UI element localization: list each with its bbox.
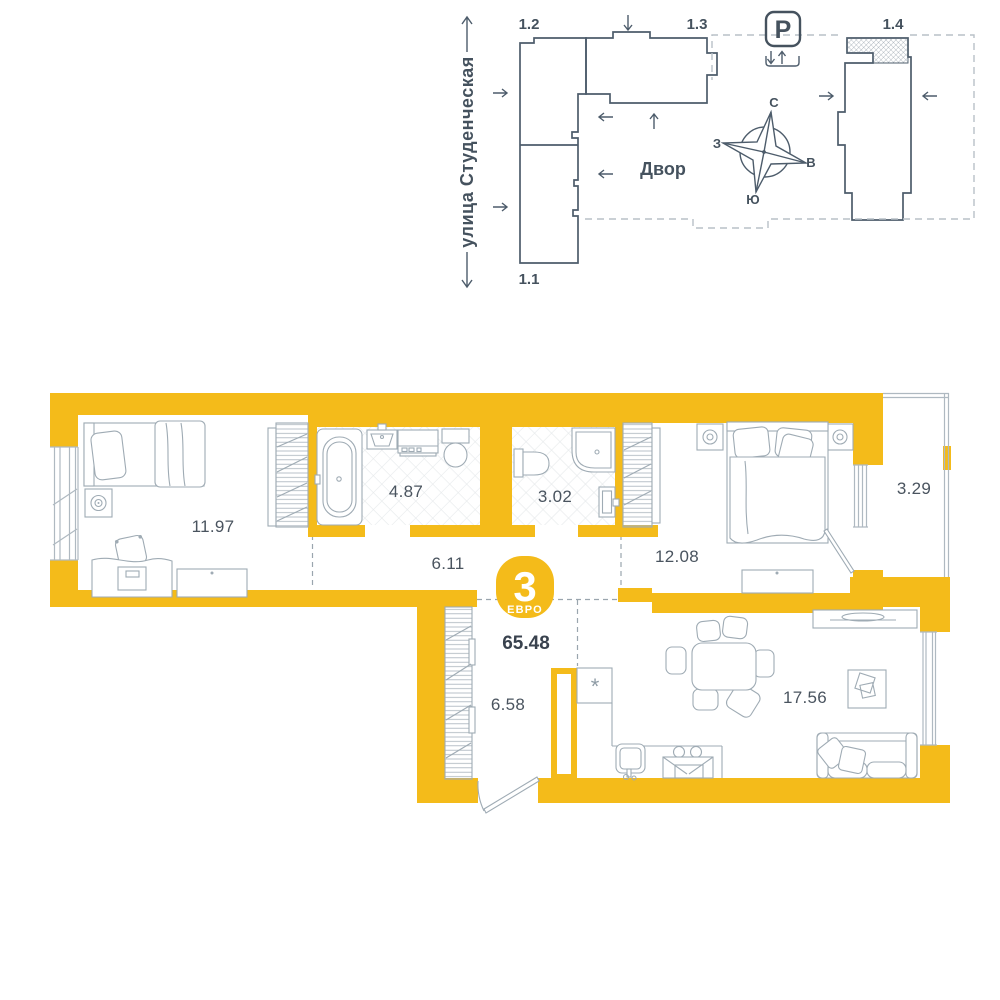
toilet <box>442 429 469 467</box>
building-label-1-1: 1.1 <box>519 271 540 288</box>
parking-arrow-down-icon <box>768 51 775 64</box>
building-1-3-outline <box>586 32 717 103</box>
current-section-hatch <box>847 38 908 63</box>
building-1-4 <box>838 38 911 220</box>
floorplan-page: улица Студенческая 1.2 1 <box>0 0 1000 1000</box>
dining-table <box>692 643 756 690</box>
entrance-arrow-icon <box>599 113 613 121</box>
single-bed <box>84 421 205 487</box>
sofa <box>816 733 917 778</box>
kitchen-living-furniture: * <box>577 610 917 780</box>
building-label-1-2: 1.2 <box>519 16 540 33</box>
nightstand <box>85 489 112 517</box>
corner-shower <box>572 428 615 472</box>
washing-machine <box>398 430 438 456</box>
wc-area-label: 3.02 <box>538 487 572 506</box>
bedroom-1-area-label: 11.97 <box>192 517 235 536</box>
parking-arrow-up-icon <box>779 52 786 65</box>
badge-type-label: ЕВРО <box>507 604 543 616</box>
entry-hall-area-label: 6.58 <box>491 695 525 714</box>
balcony-area-label: 3.29 <box>897 479 931 498</box>
entrance-arrow-icon <box>624 15 632 30</box>
balcony-door-frame <box>853 465 868 527</box>
site-plan: улица Студенческая 1.2 1 <box>457 12 974 288</box>
dining-set <box>666 616 774 720</box>
entrance-arrow-icon <box>493 203 507 211</box>
bedroom-2-furniture <box>623 422 854 593</box>
nightstand <box>827 424 853 450</box>
entrance-arrow-icon <box>650 114 658 129</box>
compass-west-label: З <box>713 136 721 151</box>
plan-canvas: улица Студенческая 1.2 1 <box>0 0 1000 1000</box>
street-arrow-down-icon <box>462 252 472 287</box>
building-1-1-1-2-outline <box>520 38 586 263</box>
double-bed <box>727 422 828 543</box>
desk <box>92 558 172 597</box>
entrance-arrow-icon <box>493 89 507 97</box>
entrance-arrow-icon <box>819 92 833 100</box>
street: улица Студенческая <box>457 17 477 287</box>
stove <box>663 747 713 779</box>
partition-slot <box>557 674 571 774</box>
wardrobe <box>268 423 308 527</box>
fridge: * <box>577 668 612 703</box>
building-label-1-4: 1.4 <box>883 16 905 33</box>
bathtub <box>315 429 362 525</box>
total-area-label: 65.48 <box>502 633 550 654</box>
street-arrow-up-icon <box>462 17 472 52</box>
hall-wardrobe <box>445 607 475 779</box>
parking-icon: P <box>766 12 800 66</box>
compass-east-label: В <box>806 155 815 170</box>
apartment-badge: 3 ЕВРО <box>496 556 554 618</box>
entrance-arrow-icon <box>599 170 613 178</box>
kitchen-sink <box>616 744 645 780</box>
street-name-label: улица Студенческая <box>457 56 477 247</box>
tv-console <box>813 610 917 628</box>
bedroom-2-area-label: 12.08 <box>655 547 699 566</box>
balcony-door-leaf <box>824 529 854 573</box>
compass-north-label: С <box>769 95 779 110</box>
kitchen-window <box>920 632 937 745</box>
compass-south-label: Ю <box>746 192 759 207</box>
dresser <box>177 569 247 597</box>
badge-rooms-number: 3 <box>513 563 536 610</box>
wardrobe <box>623 423 660 527</box>
nightstand <box>697 424 723 450</box>
courtyard-label: Двор <box>640 159 686 179</box>
bathroom-area-label: 4.87 <box>389 482 423 501</box>
bedroom-1-window <box>50 447 78 560</box>
hallway-area-label: 6.11 <box>431 554 464 573</box>
dresser <box>742 570 813 593</box>
entrance-door <box>478 777 539 813</box>
building-label-1-3: 1.3 <box>687 16 708 33</box>
entrance-arrow-icon <box>923 92 937 100</box>
compass-icon: С Ю З В <box>713 95 816 207</box>
parking-letter: P <box>775 16 792 44</box>
bedroom-1-furniture <box>84 421 308 597</box>
floor-plan: * <box>50 393 951 813</box>
kitchen-living-area-label: 17.56 <box>783 688 827 707</box>
fridge-marker: * <box>591 674 600 699</box>
rug-plant <box>848 670 886 708</box>
